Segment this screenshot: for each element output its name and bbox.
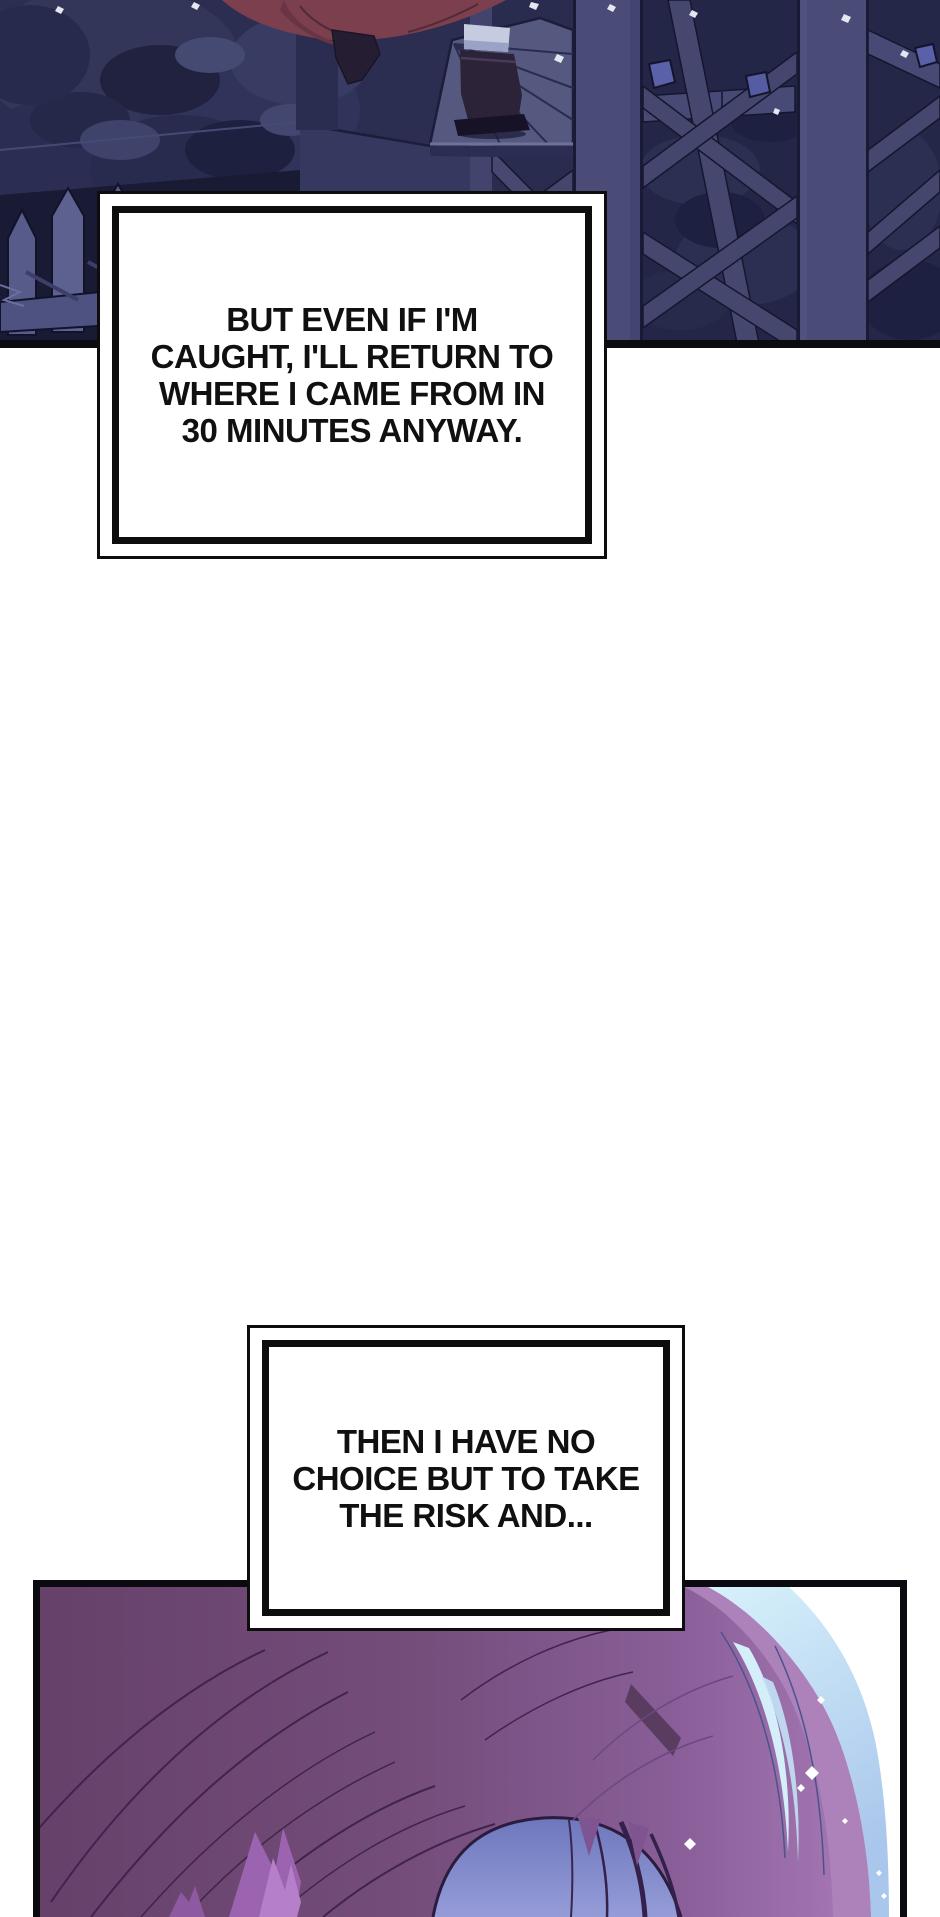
comic-page: BUT EVEN IF I'M CAUGHT, I'LL RETURN TO W… bbox=[0, 0, 940, 1917]
speech-line: THEN I HAVE NO bbox=[292, 1423, 639, 1460]
caption-box-bottom: THEN I HAVE NO CHOICE BUT TO TAKE THE RI… bbox=[247, 1325, 685, 1631]
speech-line: CHOICE BUT TO TAKE bbox=[292, 1460, 639, 1497]
speech-line: BUT EVEN IF I'M bbox=[151, 301, 554, 338]
caption-box-top-inner: BUT EVEN IF I'M CAUGHT, I'LL RETURN TO W… bbox=[112, 206, 592, 544]
caption-bottom-text: THEN I HAVE NO CHOICE BUT TO TAKE THE RI… bbox=[292, 1423, 639, 1534]
speech-line: 30 MINUTES ANYWAY. bbox=[151, 412, 554, 449]
caption-box-top: BUT EVEN IF I'M CAUGHT, I'LL RETURN TO W… bbox=[97, 191, 607, 559]
speech-line: WHERE I CAME FROM IN bbox=[151, 375, 554, 412]
speech-line: CAUGHT, I'LL RETURN TO bbox=[151, 338, 554, 375]
caption-box-bottom-inner: THEN I HAVE NO CHOICE BUT TO TAKE THE RI… bbox=[262, 1340, 670, 1616]
speech-line: THE RISK AND... bbox=[292, 1497, 639, 1534]
caption-top-text: BUT EVEN IF I'M CAUGHT, I'LL RETURN TO W… bbox=[151, 301, 554, 449]
